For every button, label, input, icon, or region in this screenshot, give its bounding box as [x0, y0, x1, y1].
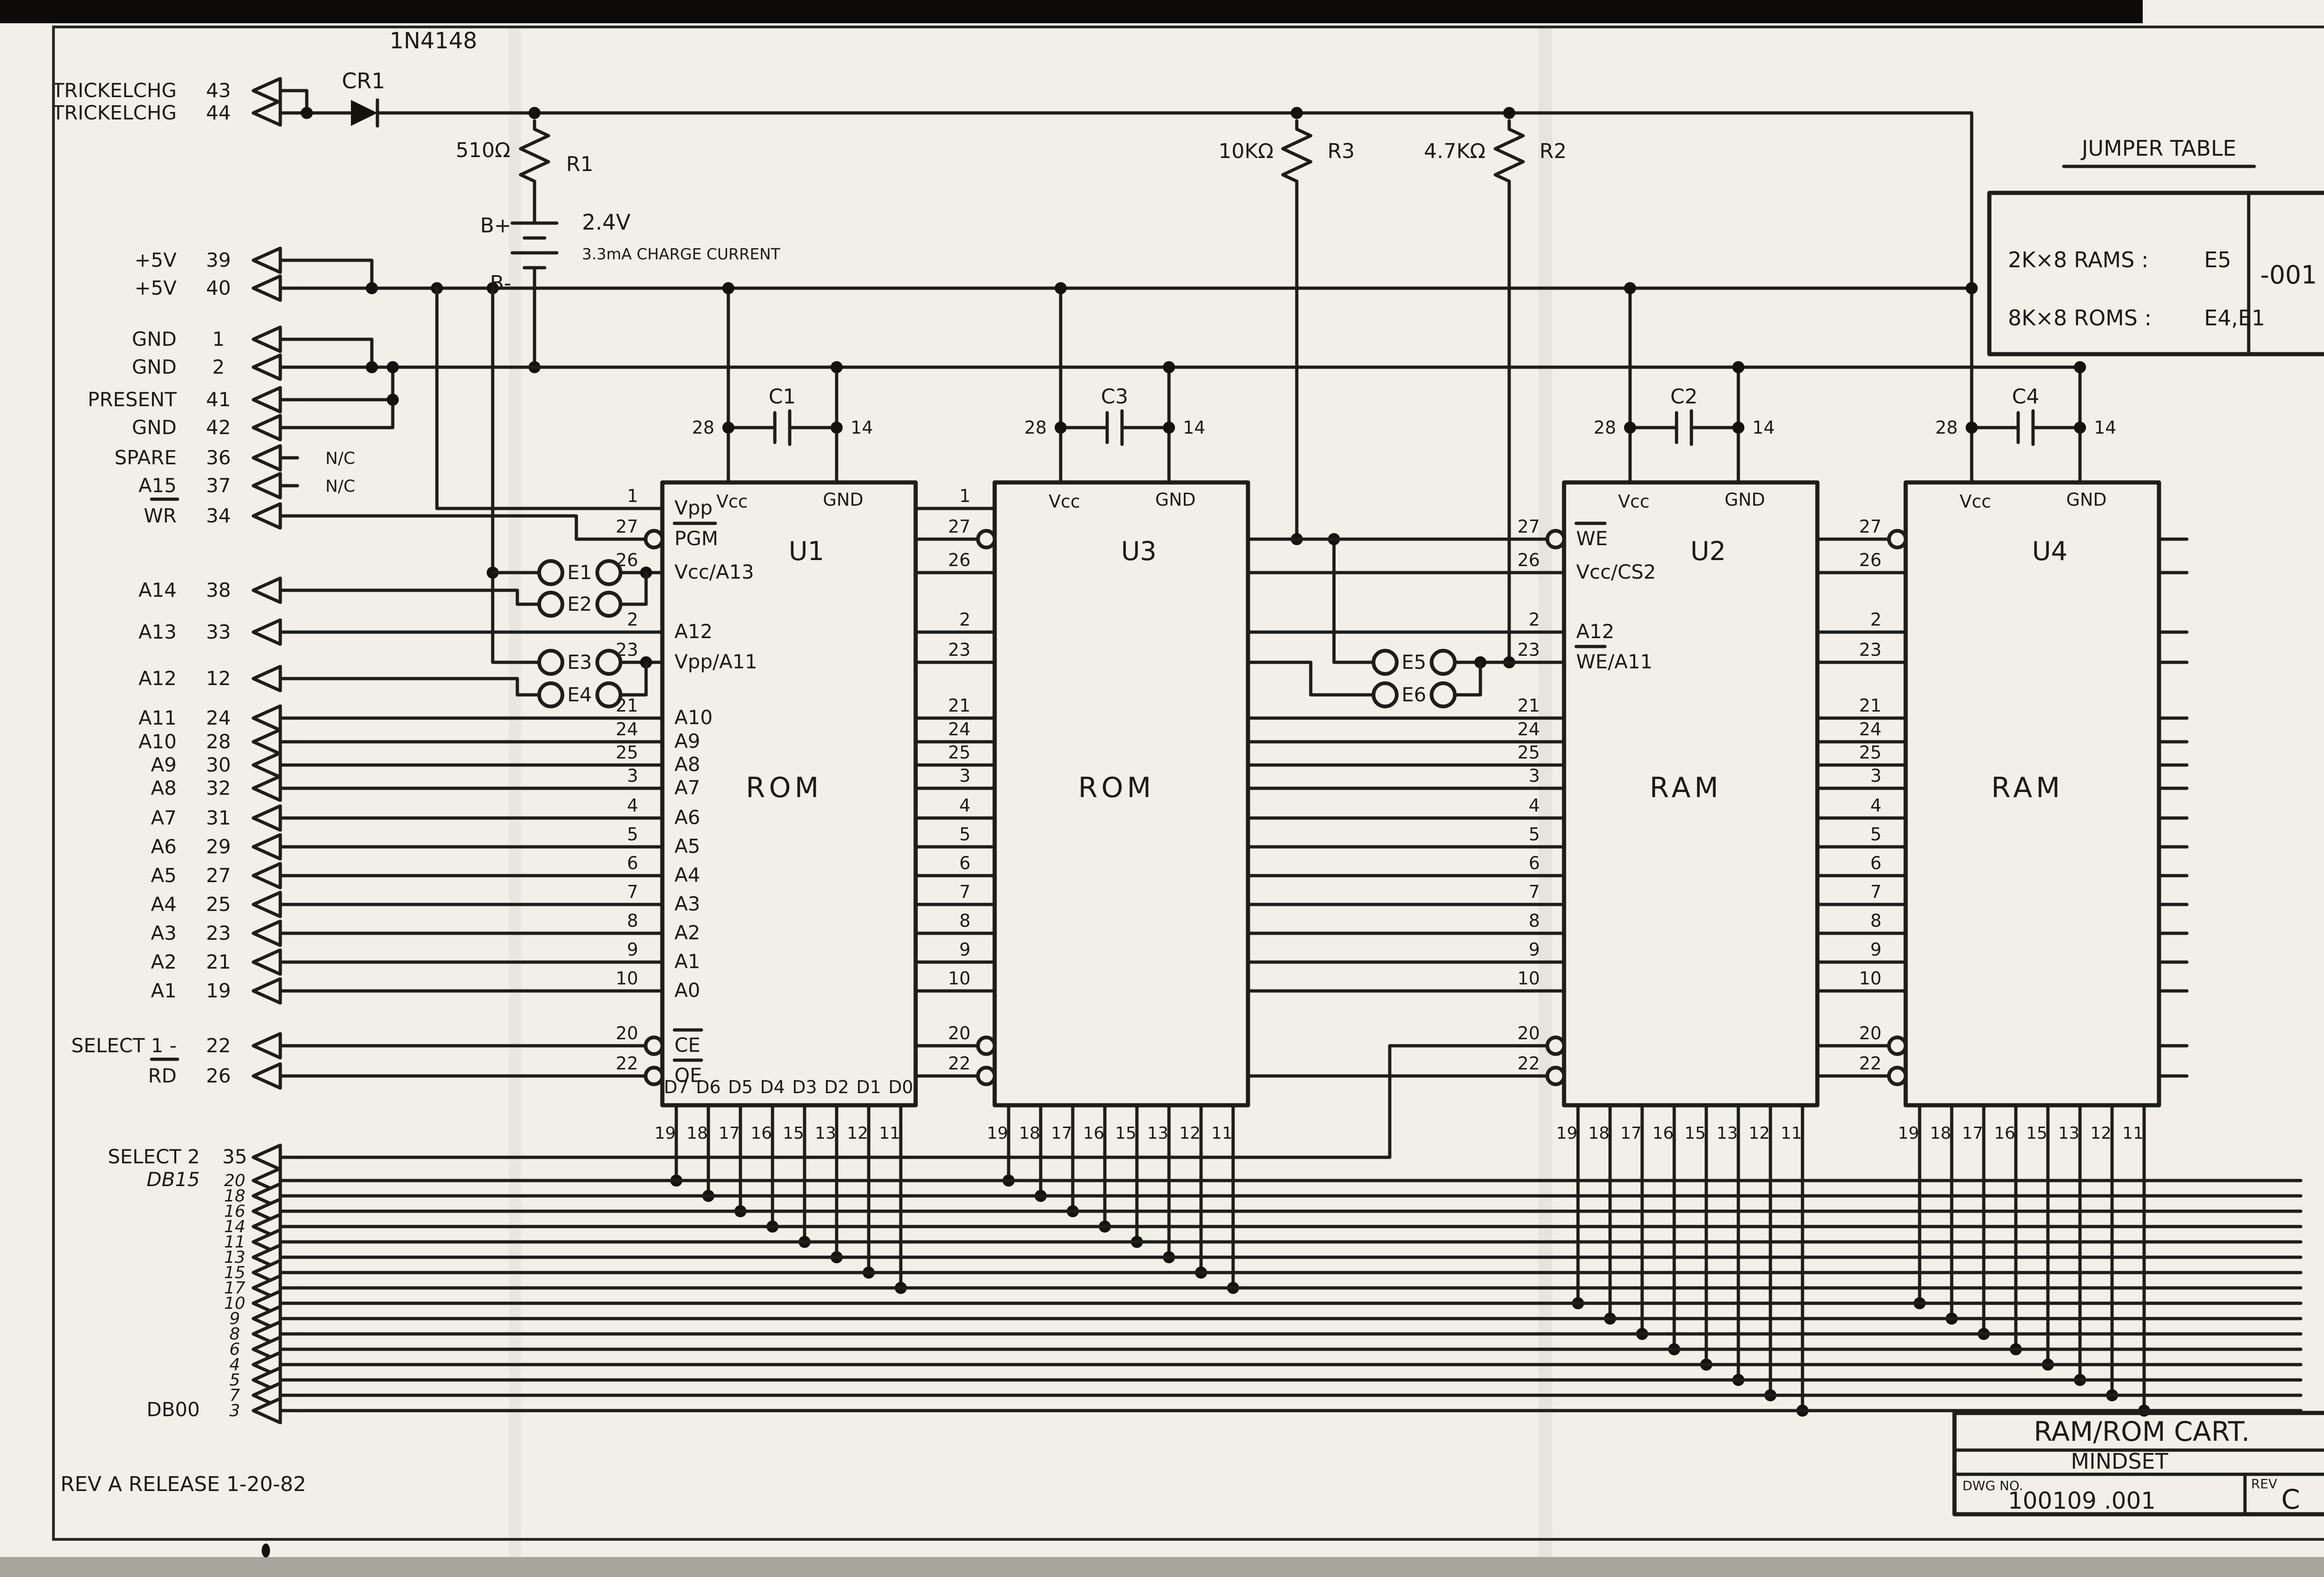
- vcc-label: Vcc: [1618, 491, 1650, 512]
- connector-pin-number: 41: [206, 388, 231, 411]
- db15-label: DB15: [146, 1168, 200, 1191]
- chip-pin-label: PGM: [674, 527, 718, 550]
- connector-signal-label: SELECT 1 -: [71, 1034, 177, 1057]
- chip-pin-label: A7: [674, 776, 700, 799]
- chip-pin-label: A12: [1576, 620, 1614, 643]
- chip-pin-number: 8: [959, 911, 971, 931]
- chip-pin-number: 22: [1859, 1053, 1882, 1074]
- connector-signal-label: A14: [139, 579, 177, 601]
- chip-pin-number: 10: [616, 968, 638, 989]
- chip-pin-number: 8: [1870, 911, 1882, 931]
- junction-dot: [1055, 282, 1067, 294]
- junction-dot: [387, 361, 399, 373]
- gnd-label: GND: [823, 489, 863, 510]
- chip-pin-number: 25: [1859, 742, 1882, 763]
- jumper-post: [1373, 651, 1397, 674]
- chip-pin-label: Vcc/CS2: [1576, 561, 1656, 583]
- bottom-pin-number: 18: [1930, 1124, 1951, 1143]
- jumper-table-row-label: 8K×8 ROMS :: [2008, 305, 2152, 330]
- connector-pin-number: 33: [206, 620, 231, 643]
- gnd-label: GND: [1155, 489, 1195, 510]
- bottom-pin-number: 12: [1749, 1124, 1770, 1143]
- r3-ref-label: R3: [1327, 139, 1355, 163]
- chip-type: RAM: [1650, 772, 1722, 804]
- chip-pin-number: 27: [1518, 516, 1540, 537]
- connector-pin-number: 42: [206, 416, 231, 439]
- pen-mark: [262, 1544, 270, 1557]
- chip-type: ROM: [1078, 772, 1155, 804]
- chip-pin-number: 9: [959, 939, 971, 960]
- chip-pin-number: 24: [616, 719, 638, 739]
- bottom-pin-number: 15: [2026, 1124, 2047, 1143]
- chip-pin-number: 6: [1529, 853, 1540, 873]
- connector-signal-label: A4: [151, 893, 177, 916]
- chip-pin-label: A6: [674, 806, 700, 829]
- jumper-label: E6: [1401, 683, 1426, 706]
- junction-dot: [1732, 422, 1744, 434]
- chip-pin-label: A0: [674, 979, 700, 1002]
- chip-ref: U1: [789, 536, 825, 567]
- chip-pin-number: 25: [948, 742, 971, 763]
- connector-signal-label: TRICKELCHG: [52, 101, 177, 124]
- chip-pin-number: 10: [948, 968, 971, 989]
- connector-signal-label: A13: [139, 620, 177, 643]
- jumper-table-title: JUMPER TABLE: [2080, 136, 2237, 161]
- chip-pin-number: 23: [1859, 640, 1882, 660]
- battery-plus-label: B+: [480, 214, 511, 238]
- chip-pin-number: 6: [627, 853, 638, 873]
- bottom-pin-number: 16: [751, 1124, 772, 1143]
- select2-label: SELECT 2: [108, 1145, 200, 1168]
- chip-pin-number: 26: [616, 550, 638, 570]
- inversion-bubble: [646, 1037, 662, 1054]
- junction-dot: [831, 422, 843, 434]
- junction-dot: [1055, 422, 1067, 434]
- chip-pin-number: 22: [1518, 1053, 1540, 1074]
- junction-dot: [1163, 361, 1175, 373]
- connector-signal-label: RD: [148, 1064, 177, 1087]
- chip-pin-number: 9: [627, 939, 638, 960]
- chip-pin-label: A1: [674, 950, 700, 973]
- chip-pin-label: Vpp/A11: [674, 650, 757, 673]
- r3-value-label: 10KΩ: [1219, 139, 1274, 163]
- gnd-pin-number: 14: [2094, 417, 2116, 438]
- chip-pin-number: 25: [1518, 742, 1540, 763]
- chip-ref: U4: [2032, 536, 2068, 567]
- gnd-pin-number: 14: [851, 417, 873, 438]
- battery-charge-note: 3.3mA CHARGE CURRENT: [582, 245, 781, 263]
- chip-pin-number: 27: [948, 516, 971, 537]
- vcc-pin-number: 28: [1935, 417, 1958, 438]
- junction-dot: [1624, 422, 1636, 434]
- chip-pin-number: 2: [959, 609, 971, 630]
- chip-pin-label: A12: [674, 620, 713, 643]
- chip-pin-number: 3: [1529, 765, 1540, 786]
- chip-pin-number: 5: [1529, 824, 1540, 845]
- chip-pin-number: 22: [616, 1053, 638, 1074]
- chip-type: ROM: [746, 772, 823, 804]
- chip-pin-label: Vcc/A13: [674, 561, 754, 583]
- connector-signal-label: A9: [151, 753, 177, 776]
- inversion-bubble: [1547, 1037, 1564, 1054]
- connector-pin-number: 29: [206, 835, 231, 858]
- jumper-table-dash-number: -001: [2260, 260, 2317, 290]
- chip-pin-number: 23: [948, 640, 971, 660]
- chip-pin-number: 26: [1518, 550, 1540, 570]
- bottom-pin-number: 17: [719, 1124, 740, 1143]
- connector-pin-number: 21: [206, 950, 231, 973]
- capacitor-ref: C4: [2012, 385, 2040, 409]
- bottom-pin-number: 11: [1781, 1124, 1802, 1143]
- chip-pin-number: 1: [627, 486, 638, 506]
- junction-dot: [722, 282, 734, 294]
- chip-ref: U3: [1121, 536, 1157, 567]
- bottom-pin-number: 15: [783, 1124, 804, 1143]
- connector-signal-label: A6: [151, 835, 177, 858]
- connector-signal-label: +5V: [134, 249, 177, 271]
- connector-signal-label: GND: [132, 356, 177, 378]
- junction-dot: [2074, 422, 2086, 434]
- r2-value-label: 4.7KΩ: [1424, 139, 1486, 163]
- vcc-label: Vcc: [1049, 491, 1080, 512]
- inversion-bubble: [978, 531, 995, 548]
- junction-dot: [831, 361, 843, 373]
- chip-pin-label: Vpp: [674, 496, 713, 519]
- chip-pin-number: 5: [1870, 824, 1882, 845]
- connector-pin-number: 39: [206, 249, 231, 271]
- chip-pin-number: 27: [1859, 516, 1882, 537]
- inversion-bubble: [978, 1068, 995, 1084]
- chip-pin-number: 20: [1518, 1023, 1540, 1043]
- bottom-pin-number: 17: [1962, 1124, 1983, 1143]
- data-pin-label: D2: [824, 1077, 849, 1097]
- battery-minus-label: B-: [490, 271, 511, 295]
- nc-label: N/C: [325, 449, 355, 468]
- bottom-pin-number: 18: [687, 1124, 708, 1143]
- bottom-pin-number: 19: [654, 1124, 676, 1143]
- company-name: MINDSET: [2071, 1449, 2168, 1474]
- vcc-label: Vcc: [716, 491, 748, 512]
- chip-pin-number: 7: [1529, 882, 1540, 902]
- jumper-label: E2: [567, 593, 592, 615]
- chip-pin-number: 20: [616, 1023, 638, 1043]
- connector-signal-label: A3: [151, 922, 177, 944]
- connector-signal-label: A8: [151, 777, 177, 799]
- vcc-pin-number: 28: [692, 417, 714, 438]
- chip-pin-number: 2: [1529, 609, 1540, 630]
- db-pin-number: 3: [230, 1401, 240, 1420]
- chip-pin-number: 21: [1518, 695, 1540, 716]
- jumper-table-row-value: E4,E1: [2204, 305, 2265, 330]
- inversion-bubble: [1547, 1068, 1564, 1084]
- bottom-pin-number: 18: [1019, 1124, 1040, 1143]
- jumper-post: [539, 651, 562, 674]
- vcc-pin-number: 28: [1024, 417, 1047, 438]
- scan-bottom-strip: [0, 1557, 2324, 1577]
- chip-pin-number: 4: [1529, 795, 1540, 816]
- chip-pin-label: A5: [674, 835, 700, 858]
- junction-dot: [1163, 422, 1175, 434]
- bottom-pin-number: 11: [1211, 1124, 1233, 1143]
- data-pin-label: D7: [664, 1077, 688, 1097]
- connector-signal-label: A7: [151, 806, 177, 829]
- junction-dot: [387, 394, 399, 406]
- capacitor-ref: C1: [769, 385, 796, 409]
- bottom-pin-number: 12: [847, 1124, 868, 1143]
- connector-signal-label: PRESENT: [88, 388, 177, 411]
- connector-pin-number: 44: [206, 101, 231, 124]
- junction-dot: [722, 422, 734, 434]
- chip-pin-number: 20: [948, 1023, 971, 1043]
- junction-dot: [301, 107, 313, 119]
- bottom-pin-number: 13: [815, 1124, 836, 1143]
- connector-pin-number: 31: [206, 806, 231, 829]
- chip-pin-number: 22: [948, 1053, 971, 1074]
- db00-label: DB00: [146, 1398, 200, 1421]
- scan-edge-strip: [0, 0, 2143, 23]
- connector-pin-number: 12: [206, 667, 231, 690]
- r1-value-label: 510Ω: [456, 139, 510, 162]
- bottom-pin-number: 13: [2058, 1124, 2080, 1143]
- jumper-post: [597, 593, 621, 616]
- chip-pin-number: 21: [616, 695, 638, 716]
- connector-signal-label: GND: [132, 328, 177, 350]
- bottom-pin-number: 11: [2122, 1124, 2144, 1143]
- inversion-bubble: [1547, 531, 1564, 548]
- chip-pin-number: 10: [1859, 968, 1882, 989]
- dwg-no-value: 100109 .001: [2008, 1487, 2156, 1514]
- inversion-bubble: [1889, 1037, 1906, 1054]
- bottom-pin-number: 13: [1717, 1124, 1738, 1143]
- junction-dot: [1732, 361, 1744, 373]
- data-pin-label: D4: [760, 1077, 785, 1097]
- connector-signal-label: WR: [144, 504, 177, 527]
- jumper-post: [1432, 651, 1455, 674]
- bottom-pin-number: 17: [1051, 1124, 1072, 1143]
- connector-pin-number: 37: [206, 474, 231, 497]
- junction-dot: [366, 361, 378, 373]
- chip-pin-label: A10: [674, 706, 713, 729]
- chip-type: RAM: [1991, 772, 2064, 804]
- connector-signal-label: A5: [151, 864, 177, 887]
- chip-pin-label: A9: [674, 730, 700, 752]
- data-pin-label: D5: [728, 1077, 753, 1097]
- chip-pin-number: 5: [627, 824, 638, 845]
- chip-pin-number: 2: [1870, 609, 1882, 630]
- connector-signal-label: TRICKELCHG: [52, 79, 177, 102]
- junction-dot: [2074, 361, 2086, 373]
- chip-pin-number: 9: [1870, 939, 1882, 960]
- chip-pin-label: CE: [674, 1034, 700, 1056]
- rev-value: C: [2281, 1484, 2300, 1515]
- chip-pin-number: 4: [1870, 795, 1882, 816]
- jumper-post: [539, 593, 562, 616]
- bottom-pin-number: 16: [1083, 1124, 1104, 1143]
- bottom-pin-number: 12: [1179, 1124, 1201, 1143]
- vcc-pin-number: 28: [1594, 417, 1616, 438]
- select2-pin: 35: [222, 1145, 247, 1168]
- drawing-title: RAM/ROM CART.: [2034, 1416, 2250, 1447]
- bottom-pin-number: 19: [1898, 1124, 1919, 1143]
- jumper-label: E1: [567, 561, 592, 584]
- chip-pin-number: 8: [1529, 911, 1540, 931]
- bottom-pin-number: 13: [1147, 1124, 1169, 1143]
- connector-pin-number: 2: [212, 356, 225, 378]
- jumper-post: [1373, 683, 1397, 706]
- connector-pin-number: 28: [206, 730, 231, 753]
- chip-pin-number: 21: [948, 695, 971, 716]
- chip-pin-number: 24: [948, 719, 971, 739]
- connector-pin-number: 25: [206, 893, 231, 916]
- jumper-label: E3: [567, 651, 592, 673]
- gnd-label: GND: [1724, 489, 1765, 510]
- paper-fold-crease: [509, 28, 521, 1557]
- bottom-pin-number: 17: [1620, 1124, 1642, 1143]
- chip-pin-label: A4: [674, 864, 700, 886]
- chip-pin-number: 10: [1518, 968, 1540, 989]
- chip-pin-number: 6: [959, 853, 971, 873]
- chip-pin-number: 25: [616, 742, 638, 763]
- vcc-label: Vcc: [1960, 491, 1991, 512]
- data-pin-label: D1: [856, 1077, 881, 1097]
- chip-pin-number: 5: [959, 824, 971, 845]
- connector-pin-number: 32: [206, 777, 231, 799]
- connector-signal-label: GND: [132, 416, 177, 439]
- bottom-pin-number: 15: [1684, 1124, 1706, 1143]
- junction-dot: [1966, 282, 1978, 294]
- chip-pin-number: 3: [627, 765, 638, 786]
- bottom-pin-number: 19: [1556, 1124, 1578, 1143]
- diode-ref-label: CR1: [342, 68, 385, 93]
- connector-pin-number: 38: [206, 579, 231, 601]
- chip-pin-label: A2: [674, 921, 700, 944]
- gnd-pin-number: 14: [1183, 417, 1205, 438]
- connector-pin-number: 27: [206, 864, 231, 887]
- connector-signal-label: A12: [139, 667, 177, 690]
- chip-pin-number: 24: [1518, 719, 1540, 739]
- inversion-bubble: [646, 531, 662, 548]
- r1-ref-label: R1: [566, 152, 594, 176]
- connector-signal-label: SPARE: [114, 446, 177, 469]
- jumper-label: E4: [567, 683, 592, 706]
- connector-signal-label: A11: [139, 706, 177, 729]
- chip-pin-number: 7: [1870, 882, 1882, 902]
- chip-pin-number: 6: [1870, 853, 1882, 873]
- data-pin-label: D0: [888, 1077, 913, 1097]
- chip-pin-label: WE/A11: [1576, 650, 1652, 673]
- chip-pin-number: 4: [959, 795, 971, 816]
- chip-pin-label: A3: [674, 892, 700, 915]
- chip-pin-number: 23: [1518, 640, 1540, 660]
- chip-pin-number: 3: [1870, 765, 1882, 786]
- gnd-label: GND: [2066, 489, 2106, 510]
- inversion-bubble: [1889, 1068, 1906, 1084]
- connector-pin-number: 1: [212, 328, 225, 350]
- junction-dot: [1503, 107, 1515, 119]
- capacitor-ref: C3: [1101, 385, 1129, 409]
- chip-pin-number: 7: [959, 882, 971, 902]
- connector-pin-number: 34: [206, 504, 231, 527]
- chip-pin-number: 24: [1859, 719, 1882, 739]
- bottom-pin-number: 15: [1115, 1124, 1136, 1143]
- connector-pin-number: 22: [206, 1034, 231, 1057]
- bottom-pin-number: 16: [1652, 1124, 1674, 1143]
- junction-dot: [528, 107, 541, 119]
- jumper-post: [539, 683, 562, 706]
- junction-dot: [1624, 282, 1636, 294]
- chip-pin-number: 27: [616, 516, 638, 537]
- inversion-bubble: [978, 1037, 995, 1054]
- connector-signal-label: A1: [151, 979, 177, 1002]
- connector-pin-number: 40: [206, 277, 231, 299]
- connector-pin-number: 26: [206, 1064, 231, 1087]
- chip-pin-number: 4: [627, 795, 638, 816]
- junction-dot: [1966, 422, 1978, 434]
- chip-pin-number: 2: [627, 609, 638, 630]
- data-pin-label: D6: [696, 1077, 720, 1097]
- gnd-pin-number: 14: [1752, 417, 1775, 438]
- schematic-svg: TRICKELCHG43TRICKELCHG44+5V39+5V40GND1GN…: [0, 0, 2324, 1577]
- jumper-post: [539, 561, 562, 584]
- capacitor-ref: C2: [1670, 385, 1698, 409]
- schematic-sheet: TRICKELCHG43TRICKELCHG44+5V39+5V40GND1GN…: [0, 0, 2324, 1577]
- chip-ref: U2: [1690, 536, 1726, 567]
- bottom-pin-number: 19: [987, 1124, 1008, 1143]
- connector-pin-number: 36: [206, 446, 231, 469]
- chip-pin-number: 26: [948, 550, 971, 570]
- jumper-table-row-label: 2K×8 RAMS :: [2008, 247, 2148, 272]
- chip-pin-label: A8: [674, 753, 700, 776]
- r2-ref-label: R2: [1539, 139, 1567, 163]
- jumper-label: E5: [1401, 651, 1426, 673]
- connector-pin-number: 30: [206, 753, 231, 776]
- chip-pin-number: 7: [627, 882, 638, 902]
- connector-signal-label: A2: [151, 950, 177, 973]
- chip-pin-label: WE: [1576, 527, 1608, 550]
- revision-note: REV A RELEASE 1-20-82: [60, 1472, 306, 1496]
- chip-pin-number: 23: [616, 640, 638, 660]
- jumper-post: [1432, 683, 1455, 706]
- chip-pin-number: 26: [1859, 550, 1882, 570]
- chip-pin-number: 1: [959, 486, 971, 506]
- chip-pin-number: 20: [1859, 1023, 1882, 1043]
- jumper-table-row-value: E5: [2204, 247, 2231, 272]
- chip-pin-number: 9: [1529, 939, 1540, 960]
- bottom-pin-number: 16: [1994, 1124, 2015, 1143]
- bottom-pin-number: 18: [1588, 1124, 1610, 1143]
- connector-pin-number: 24: [206, 706, 231, 729]
- inversion-bubble: [1889, 531, 1906, 548]
- chip-pin-number: 21: [1859, 695, 1882, 716]
- connector-signal-label: A15: [139, 474, 177, 497]
- connector-pin-number: 19: [206, 979, 231, 1002]
- data-pin-label: D3: [792, 1077, 817, 1097]
- inversion-bubble: [646, 1068, 662, 1084]
- bottom-pin-number: 11: [879, 1124, 900, 1143]
- diode-part-label: 1N4148: [390, 28, 477, 54]
- connector-signal-label: A10: [139, 730, 177, 753]
- battery-voltage-label: 2.4V: [582, 210, 631, 235]
- paper-fold-crease: [1538, 28, 1552, 1557]
- chip-pin-number: 3: [959, 765, 971, 786]
- junction-dot: [1291, 107, 1303, 119]
- bottom-pin-number: 12: [2090, 1124, 2112, 1143]
- nc-label: N/C: [325, 477, 355, 496]
- rev-label: REV: [2251, 1476, 2277, 1491]
- connector-pin-number: 23: [206, 922, 231, 944]
- connector-signal-label: +5V: [134, 277, 177, 299]
- junction-dot: [366, 282, 378, 294]
